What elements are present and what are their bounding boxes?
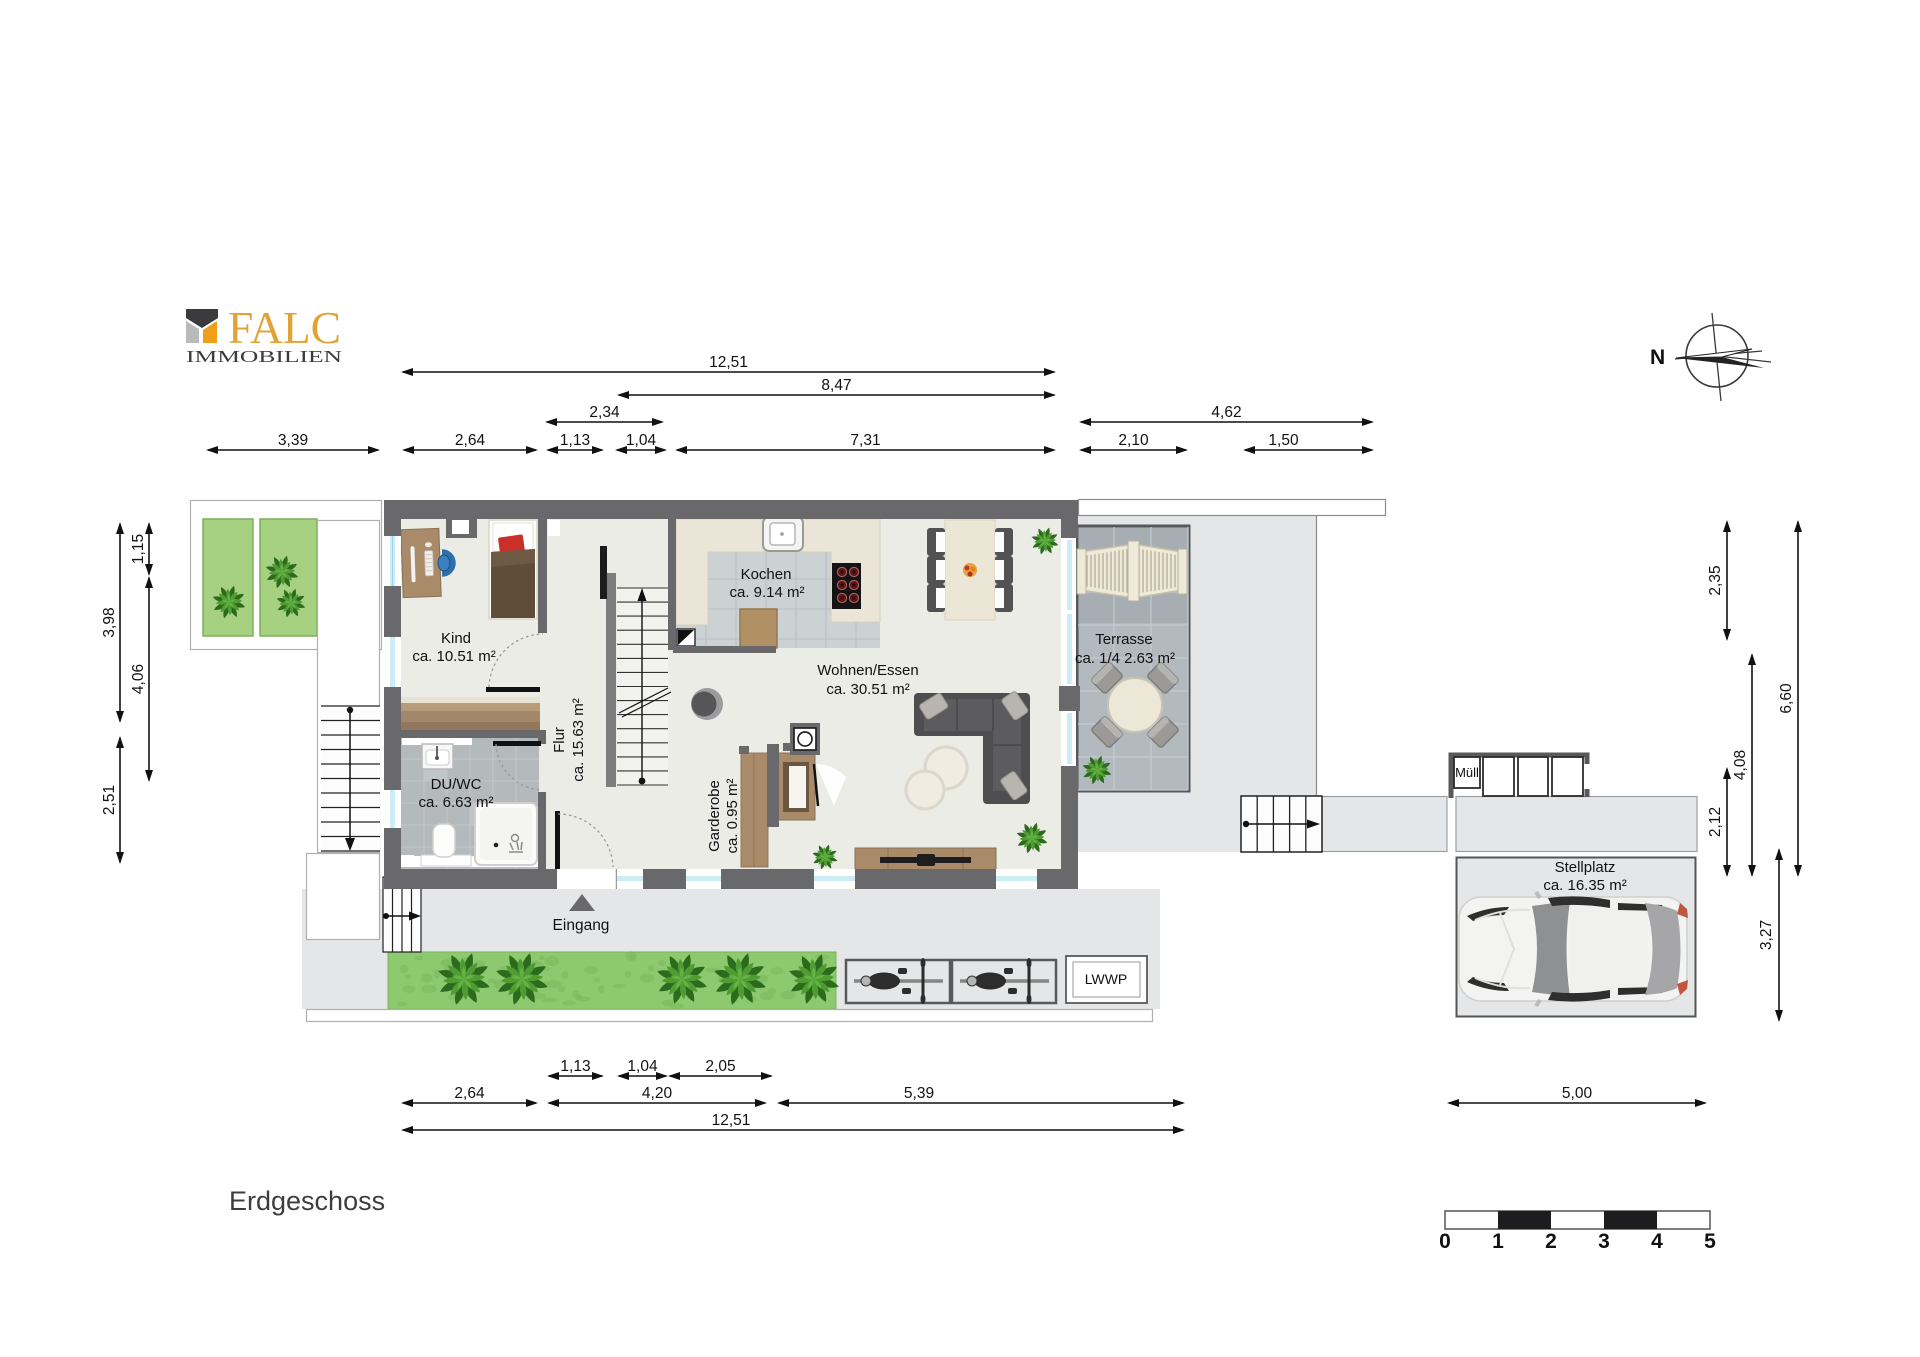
svg-text:1,15: 1,15 bbox=[130, 534, 147, 564]
svg-text:4,08: 4,08 bbox=[1732, 750, 1749, 780]
svg-text:2,51: 2,51 bbox=[101, 785, 118, 815]
svg-text:2,34: 2,34 bbox=[589, 404, 620, 421]
svg-text:Kochen: Kochen bbox=[741, 566, 792, 583]
svg-text:5,00: 5,00 bbox=[1562, 1085, 1593, 1102]
svg-text:4: 4 bbox=[1651, 1230, 1663, 1253]
svg-text:N: N bbox=[1650, 346, 1665, 369]
svg-text:3,98: 3,98 bbox=[101, 607, 118, 637]
svg-text:4,20: 4,20 bbox=[642, 1085, 673, 1102]
svg-text:4,62: 4,62 bbox=[1211, 404, 1241, 421]
svg-text:1,13: 1,13 bbox=[560, 432, 590, 449]
svg-text:3: 3 bbox=[1598, 1230, 1610, 1253]
svg-text:0: 0 bbox=[1439, 1230, 1451, 1253]
svg-text:Erdgeschoss: Erdgeschoss bbox=[229, 1186, 385, 1216]
svg-text:3,39: 3,39 bbox=[278, 432, 308, 449]
svg-text:5: 5 bbox=[1704, 1230, 1716, 1253]
svg-text:2: 2 bbox=[1545, 1230, 1557, 1253]
svg-text:Stellplatz: Stellplatz bbox=[1555, 859, 1616, 876]
svg-text:Müll: Müll bbox=[1455, 765, 1479, 780]
svg-text:7,31: 7,31 bbox=[850, 432, 880, 449]
svg-text:2,10: 2,10 bbox=[1118, 432, 1149, 449]
svg-text:ca. 30.51 m²: ca. 30.51 m² bbox=[826, 681, 909, 698]
svg-text:ca. 10.51 m²: ca. 10.51 m² bbox=[412, 648, 495, 665]
svg-text:2,12: 2,12 bbox=[1707, 807, 1724, 837]
svg-text:ca. 6.63 m²: ca. 6.63 m² bbox=[418, 794, 493, 811]
svg-text:12,51: 12,51 bbox=[709, 354, 748, 371]
svg-text:LWWP: LWWP bbox=[1085, 971, 1128, 987]
svg-text:Flur: Flur bbox=[551, 727, 568, 753]
svg-text:1,04: 1,04 bbox=[626, 432, 657, 449]
svg-text:2,35: 2,35 bbox=[1707, 565, 1724, 595]
svg-text:2,64: 2,64 bbox=[454, 1085, 485, 1102]
svg-text:Wohnen/Essen: Wohnen/Essen bbox=[817, 662, 918, 679]
svg-text:1: 1 bbox=[1492, 1230, 1504, 1253]
svg-text:Kind: Kind bbox=[441, 630, 471, 647]
svg-text:12,51: 12,51 bbox=[712, 1112, 751, 1129]
svg-text:ca. 0.95 m²: ca. 0.95 m² bbox=[724, 778, 741, 853]
svg-text:ca. 16.35 m²: ca. 16.35 m² bbox=[1543, 877, 1626, 894]
svg-text:1,50: 1,50 bbox=[1268, 432, 1299, 449]
svg-text:Garderobe: Garderobe bbox=[706, 780, 723, 852]
svg-text:8,47: 8,47 bbox=[821, 377, 851, 394]
svg-text:ca. 1/4 2.63 m²: ca. 1/4 2.63 m² bbox=[1075, 650, 1175, 667]
svg-text:1,13: 1,13 bbox=[560, 1058, 590, 1075]
svg-text:6,60: 6,60 bbox=[1778, 683, 1795, 714]
svg-text:IMMOBILIEN: IMMOBILIEN bbox=[186, 347, 342, 366]
svg-text:2,05: 2,05 bbox=[705, 1058, 735, 1075]
svg-text:1,04: 1,04 bbox=[627, 1058, 658, 1075]
svg-text:Eingang: Eingang bbox=[553, 917, 610, 934]
svg-text:FALC: FALC bbox=[228, 302, 341, 353]
svg-text:DU/WC: DU/WC bbox=[431, 776, 482, 793]
svg-text:5,39: 5,39 bbox=[904, 1085, 934, 1102]
svg-text:3,27: 3,27 bbox=[1758, 920, 1775, 950]
svg-text:ca. 15.63 m²: ca. 15.63 m² bbox=[570, 698, 587, 781]
svg-text:ca. 9.14 m²: ca. 9.14 m² bbox=[729, 584, 804, 601]
svg-text:2,64: 2,64 bbox=[455, 432, 486, 449]
svg-text:4,06: 4,06 bbox=[130, 664, 147, 694]
svg-text:Terrasse: Terrasse bbox=[1095, 631, 1153, 648]
